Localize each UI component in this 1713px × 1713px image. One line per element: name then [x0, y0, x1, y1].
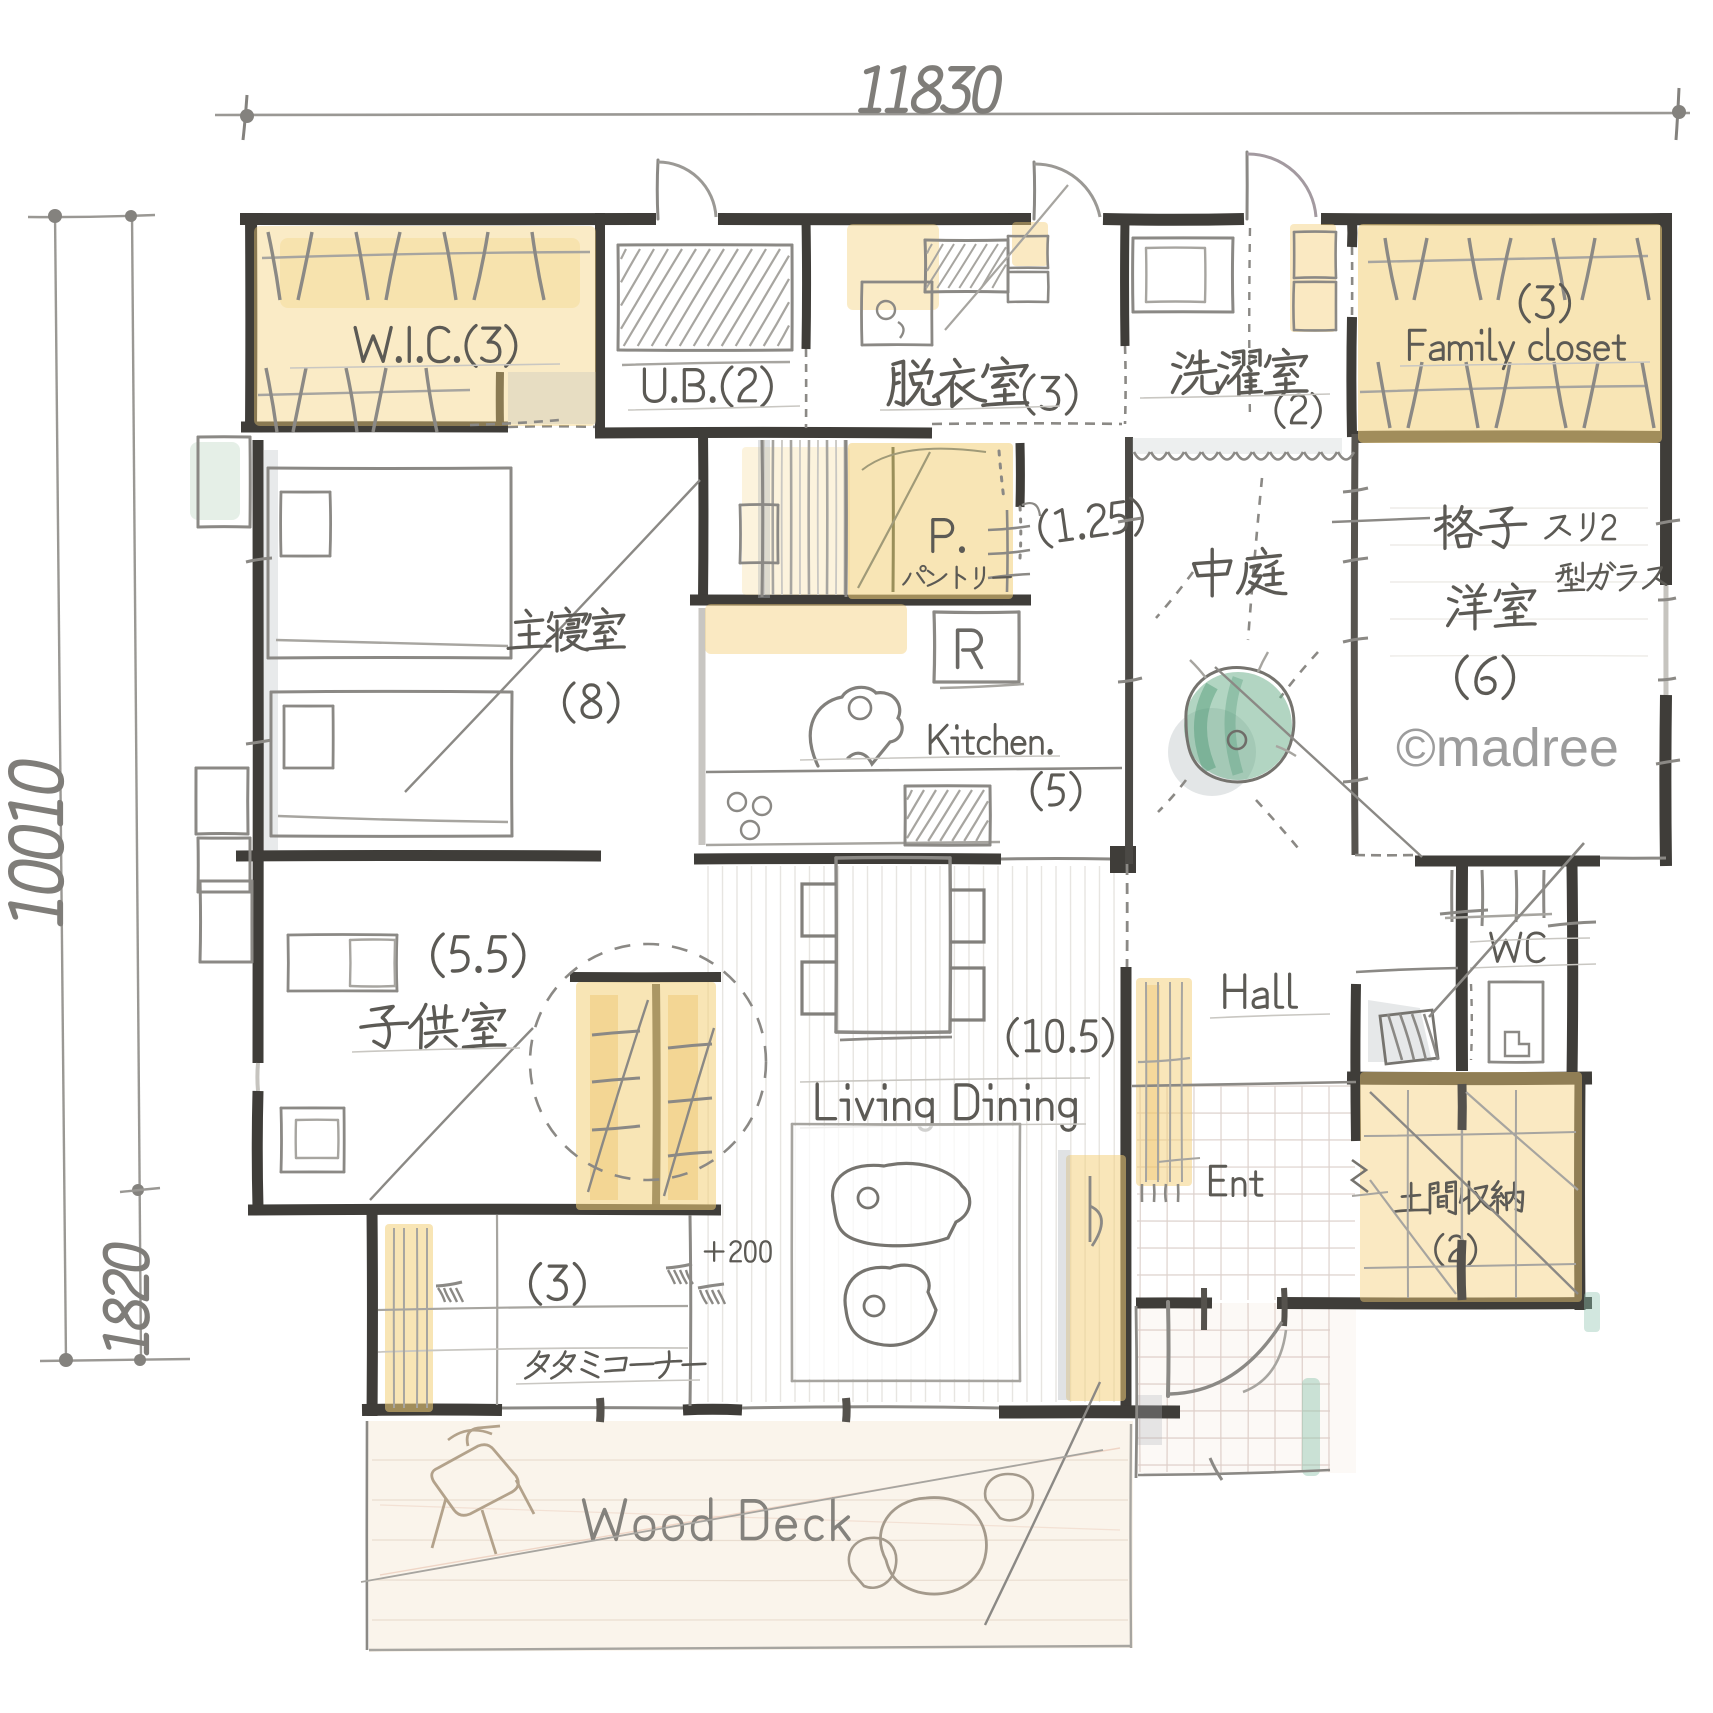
- svg-text:©madree: ©madree: [1396, 718, 1619, 778]
